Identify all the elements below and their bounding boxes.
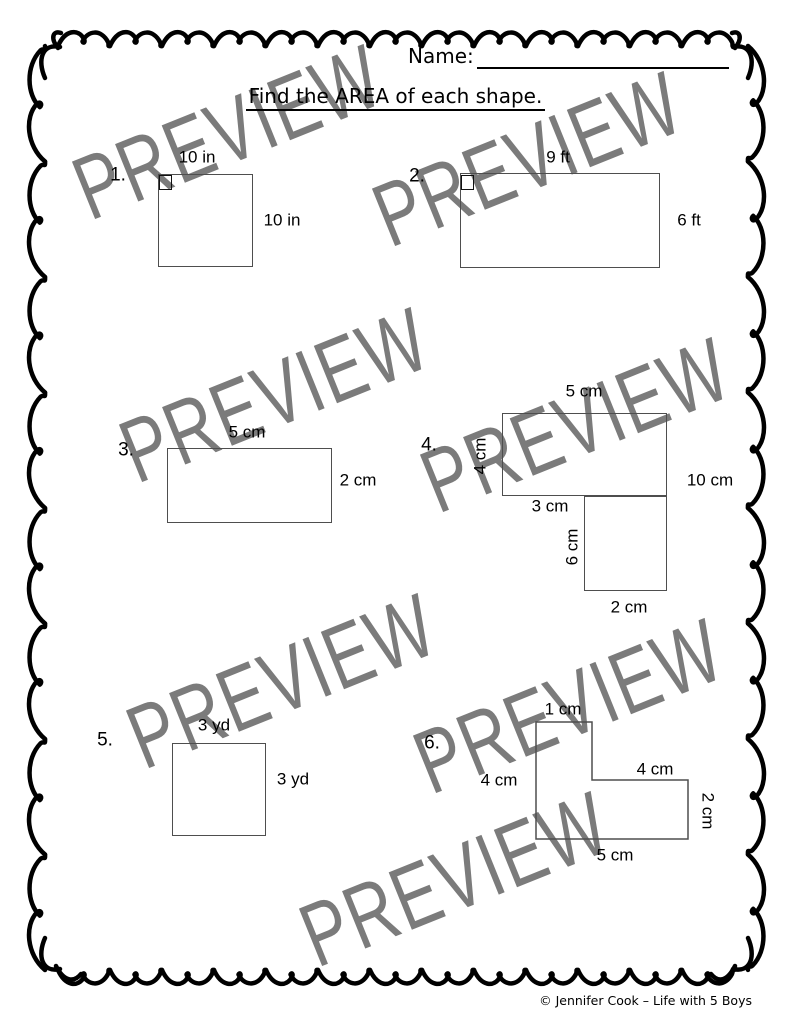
dimension-label-middle: 3 cm — [532, 498, 569, 515]
dimension-label-right: 2 cm — [700, 793, 717, 830]
dimension-label-left-lower: 6 cm — [564, 529, 581, 566]
l-shape — [535, 721, 690, 841]
dimension-label-bottom: 5 cm — [597, 847, 634, 864]
dimension-label-top: 1 cm — [545, 701, 582, 718]
dimension-label-top: 3 yd — [198, 717, 230, 734]
name-blank-line — [477, 48, 729, 69]
dimension-label-left: 4 cm — [481, 772, 518, 789]
dimension-label-right: 6 ft — [677, 212, 701, 229]
worksheet-title: Find the AREA of each shape. — [0, 84, 791, 108]
composite-top-rectangle — [502, 413, 667, 496]
dimension-label-step: 4 cm — [637, 761, 674, 778]
dimension-label-right: 10 in — [264, 212, 301, 229]
dimension-label-right: 10 cm — [687, 472, 733, 489]
dimension-label-top: 5 cm — [566, 383, 603, 400]
composite-bottom-rectangle — [584, 496, 667, 591]
dimension-label-bottom: 2 cm — [611, 599, 648, 616]
square-shape — [158, 174, 253, 267]
square-shape — [172, 743, 266, 836]
problem-number: 6. — [424, 734, 440, 753]
name-label: Name: — [408, 45, 474, 67]
rectangle-shape — [167, 448, 332, 523]
dimension-label-top: 5 cm — [229, 424, 266, 441]
dimension-label-left-upper: 4 cm — [472, 438, 489, 475]
dimension-label-right: 2 cm — [340, 472, 377, 489]
worksheet-title-text: Find the AREA of each shape. — [246, 84, 546, 111]
problem-number: 1. — [110, 166, 126, 185]
problem-number: 2. — [409, 167, 425, 186]
right-angle-marker — [159, 175, 172, 190]
dimension-label-top: 10 in — [179, 149, 216, 166]
problem-number: 5. — [97, 731, 113, 750]
dimension-label-right: 3 yd — [277, 771, 309, 788]
dimension-label-top: 9 ft — [546, 149, 570, 166]
problem-number: 4. — [421, 436, 437, 455]
worksheet-page: PREVIEW PREVIEW PREVIEW PREVIEW PREVIEW … — [0, 0, 791, 1024]
right-angle-marker — [461, 175, 474, 190]
copyright-text: © Jennifer Cook – Life with 5 Boys — [0, 993, 752, 1008]
rectangle-shape — [460, 173, 660, 268]
problem-number: 3. — [118, 441, 134, 460]
